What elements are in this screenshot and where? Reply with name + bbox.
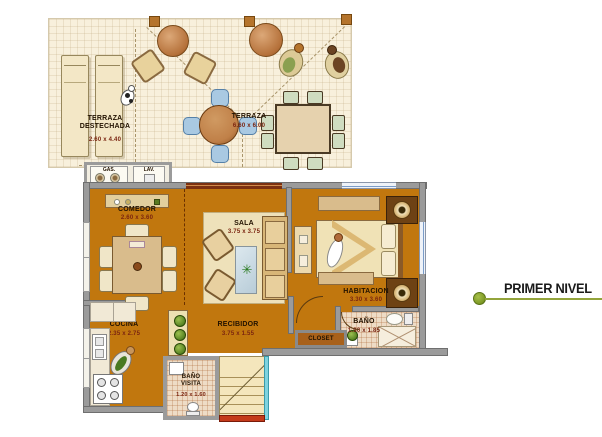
pillow: [381, 251, 396, 276]
pantry-shelf: [168, 310, 188, 356]
staircase: [219, 356, 265, 420]
terrace-chair: [307, 91, 323, 104]
gas-label: GAS.: [91, 167, 127, 173]
floor-plan-canvas: TERRAZA DESTECHADA 2.60 x 4.40 TERRAZA 6…: [0, 0, 602, 437]
room-dims-bano-visita: 1.20 x 1.60: [167, 392, 215, 398]
terrace-chair: [261, 133, 274, 149]
room-label-comedor: COMEDOR: [98, 206, 176, 214]
planter: [157, 25, 189, 57]
label-line: DESTECHADA: [51, 123, 159, 131]
bench: [318, 196, 380, 211]
room-dims-comedor: 2.60 x 3.60: [98, 215, 176, 221]
window-cocina-left: [83, 328, 90, 388]
dashed-divider: [184, 189, 185, 305]
person-figure: [277, 43, 311, 79]
sofa: [262, 216, 288, 300]
stove: [93, 374, 123, 404]
comedor-table: [112, 236, 162, 294]
terrace-chair: [332, 115, 345, 131]
dining-chair: [162, 270, 177, 292]
label-line: VISITA: [167, 381, 215, 388]
room-label-habitacion: HABITACION: [320, 288, 412, 296]
stairs-base-strip: [219, 415, 265, 422]
toilet-tank: [404, 313, 413, 325]
terrace-chair: [307, 157, 323, 170]
armchair: [182, 50, 217, 85]
bano-visita: BAÑO VISITA 1.20 x 1.60: [163, 356, 219, 420]
terrace-chair: [211, 145, 229, 163]
terrace-chair: [283, 91, 299, 104]
wall-recibidor-stub: [288, 296, 294, 334]
legend-line: [485, 298, 602, 300]
closet: CLOSET: [295, 330, 347, 348]
terrace-area: TERRAZA DESTECHADA 2.60 x 4.40 TERRAZA 6…: [48, 18, 352, 168]
wall-bottom-main: [262, 348, 448, 356]
column: [341, 14, 352, 25]
label-line: TERRAZA: [51, 115, 159, 123]
room-dims-recibidor: 3.75 x 1.55: [196, 331, 280, 337]
room-label-terraza: TERRAZA: [209, 113, 289, 121]
dining-chair: [162, 246, 177, 268]
dog-figure: [119, 85, 137, 107]
label-line: BAÑO: [167, 374, 215, 381]
terrace-chair: [332, 133, 345, 149]
person-figure: [321, 45, 355, 81]
sliding-door: [186, 183, 282, 189]
window-habitacion-right: [419, 222, 426, 274]
headboard: [398, 218, 403, 280]
lav-label: LAV.: [134, 167, 164, 173]
room-dims-habitacion: 3.30 x 3.60: [320, 297, 412, 303]
kitchen-sink: [92, 334, 107, 360]
room-dims-terraza-destechada: 2.60 x 4.40: [51, 137, 159, 143]
window-habitacion-top: [342, 182, 396, 189]
room-dims-terraza: 6.60 x 6.00: [209, 123, 289, 129]
toilet-tank: [186, 411, 200, 416]
person-head: [334, 233, 343, 242]
coffee-table: ✳: [235, 246, 257, 294]
person-figure: [110, 344, 140, 378]
room-label-recibidor: RECIBIDOR: [196, 321, 280, 329]
legend-title: PRIMER NIVEL: [504, 281, 597, 296]
column: [244, 16, 255, 27]
room-label-terraza-destechada: TERRAZA DESTECHADA: [51, 115, 159, 131]
dresser: [294, 226, 312, 274]
pillow: [381, 224, 396, 249]
window-comedor-left: [83, 222, 90, 292]
plant-icon: ✳: [236, 261, 258, 279]
dining-table: [275, 104, 331, 154]
room-label-closet: CLOSET: [298, 336, 344, 343]
kitchen-counter-top: [90, 302, 136, 322]
stairs-rail: [264, 356, 269, 420]
column: [149, 16, 160, 27]
bench: [318, 272, 374, 285]
room-label-bano-visita: BAÑO VISITA: [167, 374, 215, 388]
nightstand: [386, 196, 418, 224]
terrace-chair: [283, 157, 299, 170]
